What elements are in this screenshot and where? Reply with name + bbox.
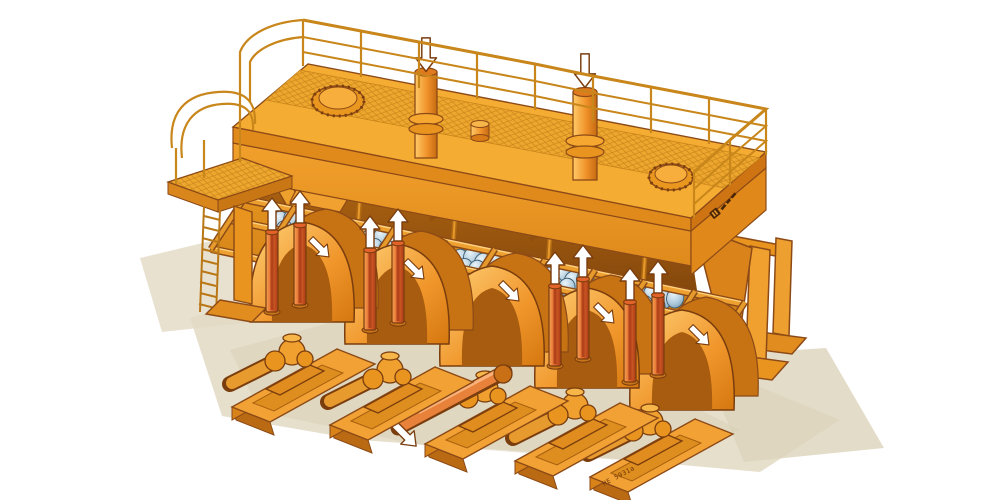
illustration-canvas: HE 5931a (0, 0, 1000, 500)
machine-illustration: HE 5931a (0, 0, 1000, 500)
manhole-cover-2 (649, 164, 693, 190)
pipe-stub (471, 121, 489, 142)
manhole-cover-1 (312, 86, 364, 116)
